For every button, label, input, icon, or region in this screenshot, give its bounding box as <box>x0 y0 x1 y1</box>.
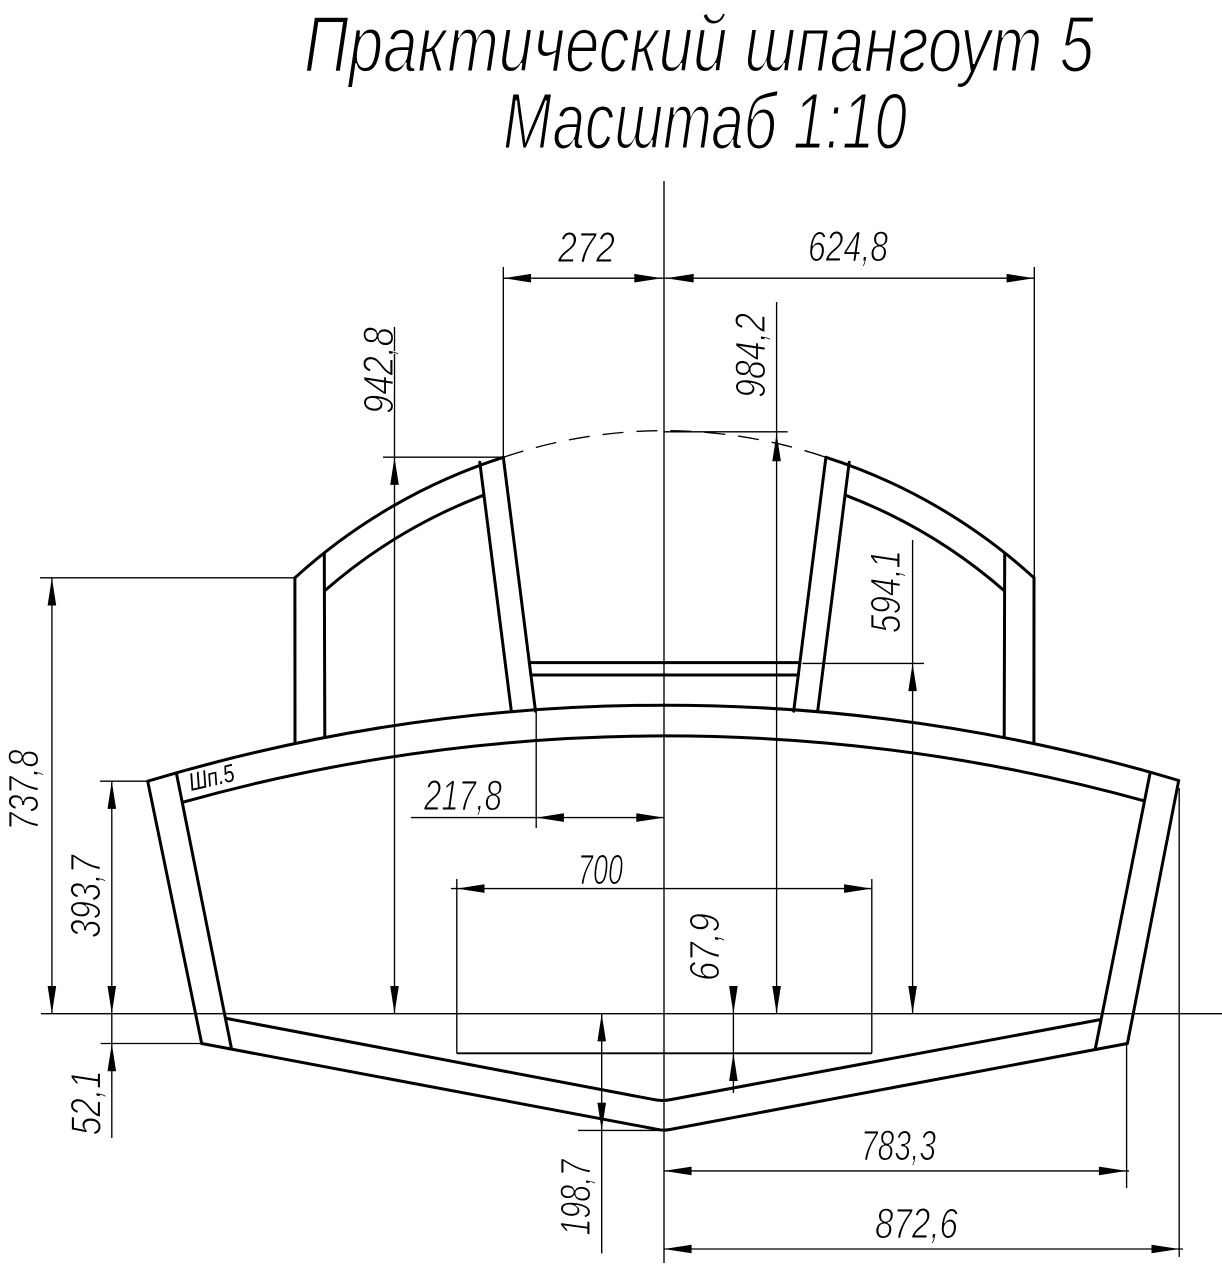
svg-text:67,9: 67,9 <box>681 913 729 981</box>
svg-text:52,1: 52,1 <box>63 1070 111 1135</box>
svg-text:594,1: 594,1 <box>862 550 910 633</box>
svg-text:393,7: 393,7 <box>62 853 110 938</box>
svg-text:872,6: 872,6 <box>875 1200 958 1248</box>
svg-text:942,8: 942,8 <box>355 327 403 414</box>
svg-text:198,7: 198,7 <box>552 1158 600 1235</box>
svg-text:783,3: 783,3 <box>861 1122 936 1170</box>
svg-text:984,2: 984,2 <box>727 313 775 398</box>
svg-text:Масштаб 1:10: Масштаб 1:10 <box>503 77 907 166</box>
svg-text:700: 700 <box>578 846 623 894</box>
svg-text:Практический шпангоут 5: Практический шпангоут 5 <box>304 0 1094 89</box>
svg-text:217,8: 217,8 <box>423 772 502 820</box>
svg-text:624,8: 624,8 <box>808 223 888 271</box>
svg-text:272: 272 <box>557 224 615 272</box>
svg-text:737,8: 737,8 <box>0 749 48 830</box>
